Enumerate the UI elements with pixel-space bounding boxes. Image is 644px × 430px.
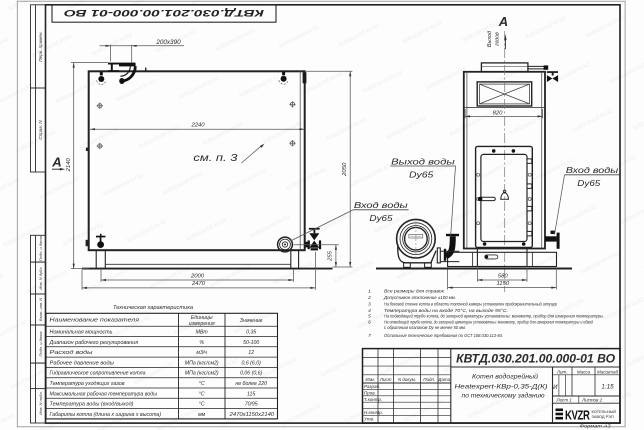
svg-text:Инв. N дубл.: Инв. N дубл. <box>38 266 43 289</box>
svg-text:На боковой стенке котла в обла: На боковой стенке котла в области топочн… <box>384 301 557 308</box>
svg-text:Габариты котла (длина х ширина: Габариты котла (длина х ширина х высота) <box>50 412 162 418</box>
svg-text:м3/ч: м3/ч <box>196 350 207 356</box>
svg-text:Рабочее давление воды: Рабочее давление воды <box>50 360 115 366</box>
svg-text:2140: 2140 <box>66 158 72 173</box>
svg-text:МПа (кгс/см2): МПа (кгс/см2) <box>185 371 219 377</box>
svg-text:Перв. примен.: Перв. примен. <box>38 31 43 62</box>
svg-text:Изм.: Изм. <box>365 377 375 382</box>
svg-text:газов: газов <box>495 32 501 46</box>
svg-text:Лит.: Лит. <box>556 369 568 374</box>
svg-text:Максимальная рабочая температу: Максимальная рабочая температура воды <box>50 391 158 397</box>
svg-text:2050: 2050 <box>342 162 348 177</box>
svg-text:Расход воды: Расход воды <box>50 350 93 356</box>
svg-text:5: 5 <box>368 314 371 320</box>
svg-text:по техническому заданию: по техническому заданию <box>462 391 545 399</box>
svg-text:мм: мм <box>198 412 206 418</box>
svg-text:МПа (кгс/см2): МПа (кгс/см2) <box>185 360 219 366</box>
svg-text:Т.контр.: Т.контр. <box>364 397 382 402</box>
svg-text:И: И <box>553 385 558 391</box>
svg-text:580: 580 <box>498 273 509 279</box>
svg-text:Взам. инв. N: Взам. инв. N <box>38 298 43 321</box>
svg-text:1:15: 1:15 <box>601 384 614 391</box>
svg-text:6: 6 <box>368 319 371 325</box>
svg-text:12: 12 <box>248 350 254 356</box>
svg-text:2240: 2240 <box>190 123 205 129</box>
svg-text:с обратным клапаном Dу не мен: с обратным клапаном Dу не менее 50 мм. <box>384 325 466 331</box>
svg-text:см. п. 3: см. п. 3 <box>193 153 238 164</box>
svg-text:Остальные технические требован: Остальные технические требования по ОСТ … <box>384 333 503 339</box>
svg-text:115: 115 <box>247 391 255 397</box>
svg-text:Листов 2: Листов 2 <box>581 397 603 402</box>
svg-text:3: 3 <box>368 302 371 308</box>
svg-text:Dy65: Dy65 <box>369 214 393 223</box>
svg-text:Номинальная мощность: Номинальная мощность <box>50 330 113 336</box>
svg-text:Диапазон рабочего регулировани: Диапазон рабочего регулирования <box>48 340 138 346</box>
svg-text:°С: °С <box>199 381 205 387</box>
svg-text:Температура уходящих газов: Температура уходящих газов <box>50 381 125 387</box>
svg-text:Вход воды: Вход воды <box>354 201 408 210</box>
svg-text:1: 1 <box>368 288 371 294</box>
svg-text:Dy65: Dy65 <box>409 170 434 179</box>
svg-text:Наименование показателя: Наименование показателя <box>50 318 140 324</box>
svg-text:Справ. N: Справ. N <box>38 120 43 140</box>
svg-text:измерения: измерения <box>189 321 215 327</box>
svg-text:ЗАВОД РЭП: ЗАВОД РЭП <box>592 414 614 419</box>
svg-text:Подп.: Подп. <box>423 377 435 382</box>
svg-text:0,6 (6,0): 0,6 (6,0) <box>242 360 262 366</box>
svg-text:А: А <box>51 155 61 170</box>
svg-text:Температура воды на входе 70°: Температура воды на входе 70°С, на выход… <box>384 308 508 314</box>
svg-text:7: 7 <box>368 333 371 339</box>
svg-text:Лист 1: Лист 1 <box>556 397 573 402</box>
svg-text:Дата: Дата <box>437 377 450 382</box>
svg-text:Heatexpert-КВр-0,35-Д(К): Heatexpert-КВр-0,35-Д(К) <box>455 383 548 390</box>
svg-text:Масса: Масса <box>577 369 591 374</box>
svg-text:На подводящей трубе котла, д: На подводящей трубе котла, до запорной а… <box>384 313 604 320</box>
svg-text:%: % <box>199 340 204 346</box>
svg-text:°С: °С <box>199 402 205 408</box>
svg-text:N докум.: N докум. <box>398 377 416 382</box>
svg-text:2: 2 <box>367 295 371 301</box>
svg-text:Температура воды (вход/выход): Температура воды (вход/выход) <box>50 402 134 408</box>
svg-text:Вход воды: Вход воды <box>566 166 618 175</box>
svg-text:0,35: 0,35 <box>246 330 256 336</box>
svg-text:Dy65: Dy65 <box>577 179 601 188</box>
svg-text:2470х1150х2140: 2470х1150х2140 <box>229 412 275 418</box>
svg-text:Н.контр.: Н.контр. <box>364 410 383 415</box>
svg-text:70/95: 70/95 <box>245 402 258 408</box>
svg-text:2000: 2000 <box>190 273 205 279</box>
svg-text:МВт: МВт <box>196 330 209 336</box>
svg-text:820: 820 <box>493 110 504 116</box>
svg-text:KVZR: KVZR <box>565 408 590 422</box>
svg-text:Формат А3: Формат А3 <box>580 423 611 429</box>
svg-text:Пров.: Пров. <box>364 391 376 396</box>
svg-text:1150: 1150 <box>496 281 509 287</box>
svg-text:Все размеры для справок: Все размеры для справок <box>384 288 445 294</box>
svg-text:2470: 2470 <box>191 281 206 287</box>
svg-text:200х390: 200х390 <box>155 39 181 46</box>
svg-text:Гидравлическое сопротивление к: Гидравлическое сопротивление котла <box>50 371 146 377</box>
svg-text:0,06 (0,6): 0,06 (0,6) <box>240 371 262 377</box>
svg-text:А: А <box>498 14 508 29</box>
svg-text:Допустимое отклонение ±100 мм: Допустимое отклонение ±100 мм. <box>383 295 456 301</box>
svg-text:Выход: Выход <box>487 31 493 47</box>
svg-text:Лист: Лист <box>379 377 392 382</box>
svg-text:Утв.: Утв. <box>364 417 374 422</box>
svg-text:Инв. N подл.: Инв. N подл. <box>38 391 43 414</box>
svg-text:КВТД.030.201.00.000-01 ВО: КВТД.030.201.00.000-01 ВО <box>64 8 264 18</box>
svg-text:°С: °С <box>199 391 205 397</box>
svg-text:Котел водогрейный: Котел водогрейный <box>472 372 538 380</box>
svg-text:4: 4 <box>368 308 371 314</box>
svg-text:КВТД.030.201.00.000-01 ВО: КВТД.030.201.00.000-01 ВО <box>456 352 616 366</box>
svg-text:На отводящей трубе котла, до з: На отводящей трубе котла, до запорной ар… <box>384 318 593 325</box>
svg-text:не более 220: не более 220 <box>235 381 267 387</box>
svg-text:Подп. и дата: Подп. и дата <box>38 235 43 261</box>
svg-text:Выход воды: Выход воды <box>391 157 455 166</box>
svg-text:Значение: Значение <box>240 318 263 324</box>
svg-text:Разраб.: Разраб. <box>364 384 380 389</box>
svg-text:50-100: 50-100 <box>243 340 259 346</box>
svg-text:Техническая характеристика: Техническая характеристика <box>113 305 193 311</box>
svg-text:Подп. и дата: Подп. и дата <box>38 331 43 357</box>
svg-text:255: 255 <box>327 250 333 262</box>
svg-text:Масштаб: Масштаб <box>597 369 618 374</box>
